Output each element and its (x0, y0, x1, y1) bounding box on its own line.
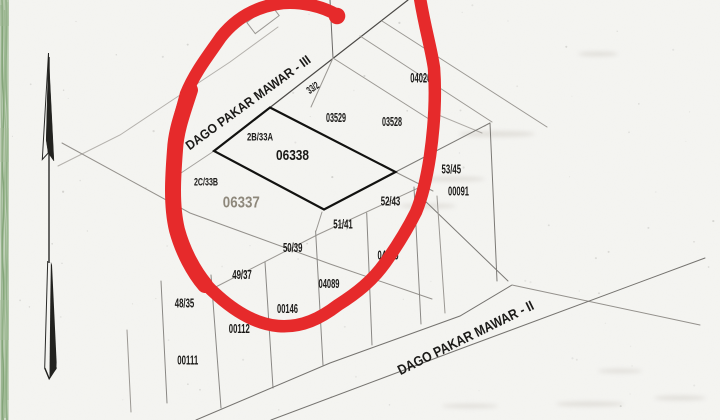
svg-text:51/41: 51/41 (333, 218, 353, 232)
svg-text:49/37: 49/37 (232, 268, 252, 282)
svg-text:00091: 00091 (448, 184, 469, 198)
svg-text:06338: 06338 (276, 147, 309, 164)
svg-text:00112: 00112 (229, 322, 250, 336)
svg-text:2B/33A: 2B/33A (247, 132, 273, 144)
svg-text:48/35: 48/35 (175, 297, 195, 311)
svg-text:00111: 00111 (177, 354, 198, 368)
svg-text:03529: 03529 (326, 111, 346, 125)
svg-text:04089: 04089 (319, 277, 340, 291)
svg-text:50/39: 50/39 (283, 241, 303, 255)
svg-text:00146: 00146 (277, 302, 298, 316)
svg-text:03528: 03528 (382, 115, 402, 129)
svg-text:06337: 06337 (223, 195, 260, 212)
svg-text:53/45: 53/45 (442, 162, 462, 176)
svg-text:2C/33B: 2C/33B (194, 177, 218, 189)
svg-text:52/43: 52/43 (381, 195, 401, 209)
